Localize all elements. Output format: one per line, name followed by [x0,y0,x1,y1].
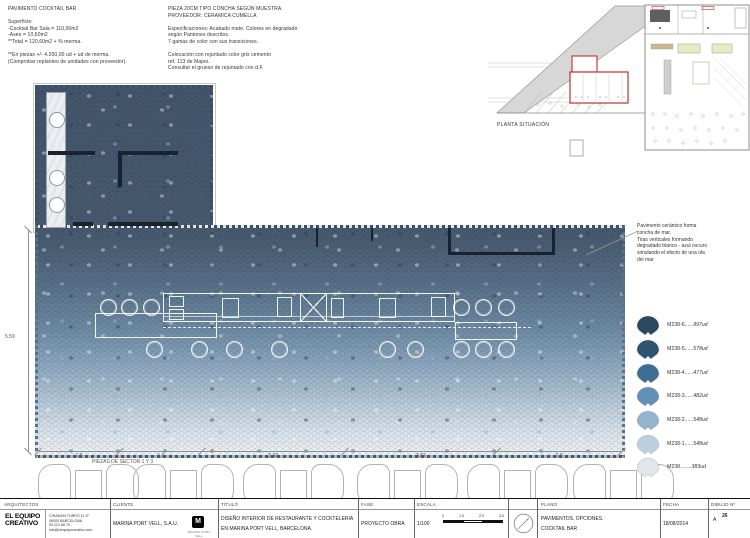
site-plan-drawing [488,0,750,158]
legend-item: M238-3......482ud [636,385,750,407]
drawing-title-line1: DISEÑO INTERIOR DE RESTAURANTE Y COCKTEL… [221,516,353,522]
legend-dots: ...... [685,393,694,399]
side-table [75,470,102,500]
bar-stool [226,341,243,358]
dim-line-bottom [38,451,622,452]
legend-units: 482ud [693,393,707,399]
dim-label-left: 5.59 [5,334,15,340]
wall [118,155,122,187]
wall-stub [316,228,318,247]
bar-return-left [95,313,217,338]
col-label-plano: PLANO [541,502,557,507]
bar-stool [146,341,163,358]
notes-pavimento: PAVIMENTO COCKTAIL BAR Superficie: -Cock… [8,6,163,65]
legend-dots: ...... [685,370,694,376]
scale-bar: 0 1,0 2,0 3,0 [443,514,507,526]
bar-equipment [331,298,344,318]
shell-tile-icon [636,315,660,336]
client-name: MARINA PORT VELL, S.A.U. [113,521,178,527]
plano-line1: PAVIMENTOS. OPCIONES. [541,516,604,522]
side-table [280,470,307,500]
bar-stool [100,299,117,316]
client-logo: M [192,516,204,528]
scale-segment [483,520,503,523]
site-plan: PLANTA SITUACIÓN [488,0,750,158]
shell-tile-icon [636,410,660,431]
col-label-dibujo: DIBUJO Nº [711,502,735,507]
bar-stool [475,341,492,358]
bar-equipment [277,297,292,317]
bar-return-right [455,322,517,340]
architects-logo-line2: CREATIVO [5,520,40,527]
wall [48,151,95,155]
legend-dots: ...... [685,417,694,423]
bar-equipment [169,309,184,320]
legend-code: M238-5 [667,346,685,352]
legend-item: M238-1......548ud [636,433,750,455]
title-block-divider [110,499,111,538]
title-block: ARQUITECTOS CLIENTE TÍTULO FASE ESCALA P… [0,498,750,538]
scale-tick: 0 [442,514,444,518]
title-block-divider [414,499,415,538]
wall-niche [448,228,451,255]
shell-tile-icon [636,339,660,360]
plan-main-area [35,225,625,458]
dim-line-left [28,230,29,452]
legend-note: Pavimento cerámico forma concha de mar. … [637,223,749,264]
legend-dots: ...... [685,441,694,447]
scale-segment [463,520,483,523]
bar-equipment [169,296,184,307]
fase-value: PROYECTO OBRA [361,521,405,527]
toilet-fixture [49,197,65,213]
col-label-escala: ESCALA [417,502,436,507]
side-table [394,470,421,500]
bar-stool [498,341,515,358]
shell-tile-icon [636,457,660,478]
legend-units: 548ud [693,441,707,447]
bar-equipment [379,298,396,318]
title-block-divider [660,499,661,538]
bar-stool [143,299,160,316]
architects-address: C/RAMON TURRÓ 11 3º 08005 BARCELONA 93 2… [49,514,109,533]
fecha-value: 18/08/2014 [663,521,688,527]
shell-tile-icon [636,434,660,455]
legend-code: M238-3 [667,393,685,399]
scale-tick: 3,0 [499,514,504,518]
bar-equipment-x [300,293,327,322]
legend-code: M238-1 [667,441,685,447]
client-logo-caption: MARINA PORT VELL [184,530,214,538]
bar-dashed-line [163,327,531,328]
legend-units: 578ud [693,346,707,352]
legend-code: M238-2 [667,417,685,423]
bar-stool [121,299,138,316]
dim-label: 3.32 [258,453,288,459]
legend-item: M238-4......477ud [636,362,750,384]
wall [73,222,93,226]
plano-line2: COCKTAIL BAR [541,526,577,532]
site-plan-label: PLANTA SITUACIÓN [497,122,549,128]
legend-code: M238-4 [667,370,685,376]
scale-tick: 2,0 [479,514,484,518]
side-table [170,470,197,500]
shell-tile-icon [636,363,660,384]
bar-equipment [222,298,239,318]
dim-label: 1.9 [64,453,94,459]
legend-units: 548ud [693,417,707,423]
legend-units: 997ud [693,322,707,328]
drawing-title-line2: EN MARINA PORT VELL, BARCELONA. [221,526,312,532]
architects-logo: EL EQUIPO CREATIVO [5,513,40,528]
bar-stool [453,341,470,358]
dibujo-number: 26 [722,513,728,519]
wall-stub [371,228,373,241]
side-table [610,470,637,500]
col-label-fase: FASE [361,502,373,507]
bar-stool [271,341,288,358]
legend-item: M238........383ud [636,456,750,478]
legend-item: M238-6......997ud [636,314,750,336]
title-block-divider [508,499,509,538]
notes-pieza: PIEZA 20CM TIPO CONCHA SEGÚN MUESTRA. PR… [168,6,353,72]
dim-label: 3.52 [406,453,436,459]
escala-value: 1/100 [417,521,430,527]
col-label-arquitectos: ARQUITECTOS [4,502,39,507]
legend-item: M238-5......578ud [636,338,750,360]
bar-stool [379,341,396,358]
wall [118,151,178,155]
dibujo-prefix: A [713,517,716,523]
bar-equipment [431,297,446,317]
scale-segment [443,520,463,523]
title-block-divider [218,499,219,538]
bar-stool [475,299,492,316]
title-block-divider [358,499,359,538]
side-table [504,470,531,500]
legend-leader-line [584,224,640,258]
toilet-fixture [49,112,65,128]
legend-dots: ...... [685,346,694,352]
title-block-divider [708,499,709,538]
bar-stool [498,299,515,316]
legend-units: 383ud [692,464,706,470]
legend-dots: ........ [680,464,692,470]
dim-label: 2.9 [544,453,574,459]
shell-tile-icon [636,386,660,407]
legend-units: 477ud [693,370,707,376]
scale-tick: 1,0 [459,514,464,518]
wall-niche [552,228,555,255]
legend-item: M238-2......548ud [636,409,750,431]
col-label-titulo: TÍTULO [221,502,238,507]
col-label-fecha: FECHA [663,502,679,507]
legend-code: M238-6 [667,322,685,328]
title-block-divider [45,510,46,538]
bar-stool [191,341,208,358]
wall [108,222,178,226]
bar-stool [453,299,470,316]
title-block-divider [537,499,538,538]
legend-dots: ...... [685,322,694,328]
toilet-fixture [49,170,65,186]
sector-label: PIEZAS DE SECTOR 1 Y 3 [92,459,153,465]
north-arrow-icon [513,513,534,534]
architects-logo-line1: EL EQUIPO [5,513,40,520]
wall-niche [448,252,555,255]
title-block-divider [0,509,750,510]
bar-stool [407,341,424,358]
legend-code: M238 [667,464,680,470]
col-label-cliente: CLIENTE [113,502,133,507]
